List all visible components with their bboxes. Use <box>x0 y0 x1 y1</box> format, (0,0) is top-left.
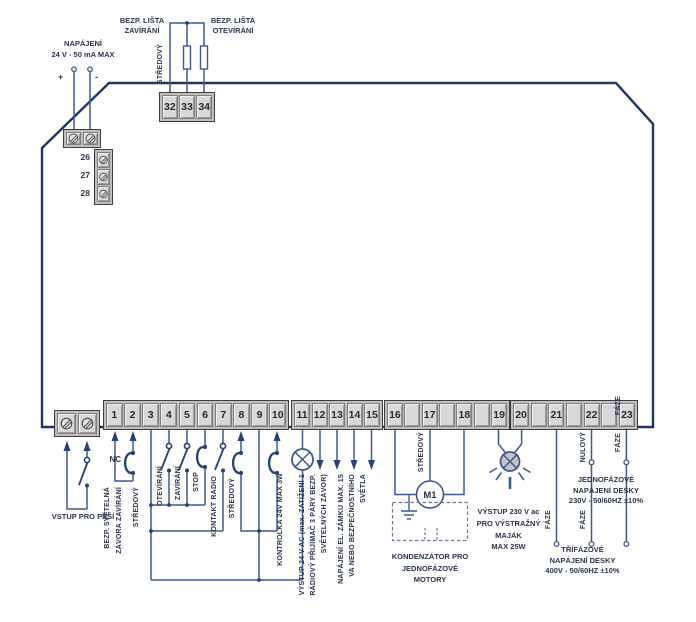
wiring-diagram: M1 <box>0 0 696 622</box>
label-line: MAJÁK <box>470 530 547 542</box>
common-t8-label: STŘEDOVÝ <box>229 478 236 518</box>
t8-nc-contact <box>233 451 243 475</box>
terminal-5: 5 <box>179 403 196 427</box>
label-line: MOTORY <box>384 574 476 586</box>
indicator-lamp-icon <box>292 449 313 470</box>
screw-icon <box>84 132 97 145</box>
screw-terminal-ped-2 <box>78 413 97 434</box>
terminal-20: 20 <box>513 403 529 427</box>
safety-edge-open-label: BEZP. LIŠTA OTEVÍRÁNÍ <box>202 16 264 35</box>
lock-supply-label-3: SVĚTLA <box>360 474 367 503</box>
terminal-12: 12 <box>312 403 328 427</box>
screw-terminal-minus <box>83 132 98 145</box>
pedestrian-loop <box>67 449 87 509</box>
common-top-label: STŘEDOVÝ <box>157 44 164 84</box>
terminal-9: 9 <box>251 403 268 427</box>
terminal-15: 15 <box>364 403 380 427</box>
three-phase-label: TŘÍFÁZOVÉ NAPÁJENÍ DESKY 400V - 50/60HZ … <box>534 545 631 577</box>
neutral-22-point <box>589 460 594 465</box>
ground-icon <box>401 495 417 520</box>
terminal-34: 34 <box>196 95 212 119</box>
terminal-17: 17 <box>422 403 438 427</box>
screw-icon <box>80 416 95 431</box>
label-line: BEZP. LIŠTA <box>202 16 264 26</box>
motor-icon: M1 <box>417 481 444 508</box>
pedestrian-switch <box>79 457 90 487</box>
indicator-label: KONTROLKA 24V MAX 3W <box>277 473 284 566</box>
lock-supply-label-2: VA NEBO BEZPEČNOSTNÍHO <box>349 474 356 577</box>
label-line: JEDNOFÁZOVÉ <box>384 563 476 575</box>
stop-label: STOP <box>193 472 200 492</box>
label-line: TŘÍFÁZOVÉ <box>534 545 631 556</box>
terminal-6: 6 <box>197 403 214 427</box>
terminal-3: 3 <box>142 403 159 427</box>
terminal-number-26: 26 <box>76 152 90 162</box>
label-line: 400V - 50/60HZ ±10% <box>534 566 631 577</box>
label-line: BEZP. LIŠTA <box>111 16 173 26</box>
terminal-strip-1-10: 1 2 3 4 5 6 7 8 9 10 <box>103 400 289 430</box>
wires-group <box>67 23 626 580</box>
label-line: PRO VÝSTRAŽNÝ <box>470 518 547 530</box>
resistor-open-edge <box>201 46 208 69</box>
terminal-18: 18 <box>456 403 472 427</box>
nc-label: NC <box>103 455 121 465</box>
screw-terminal-ped-1 <box>57 413 76 434</box>
beacon-wires <box>499 430 522 454</box>
capacitor-label: KONDENZÁTOR PRO JEDNOFÁZOVÉ MOTORY <box>384 551 476 586</box>
output24-label-2: RÁDIOVÝ PŘIJÍMAČ 3 PÁRY BEZP. <box>310 474 317 596</box>
terminal-22: 22 <box>584 403 600 427</box>
safety-edge-close-label: BEZP. LIŠTA ZAVÍRÁNÍ <box>111 16 173 35</box>
resistor-close-edge <box>184 46 191 69</box>
lock-supply-label-1: NAPÁJENÍ EL. ZÁMKU MAX. 15 <box>338 474 345 584</box>
terminal-spacer <box>531 403 547 427</box>
minus-sign: - <box>95 72 98 82</box>
terminal-spacer <box>474 403 490 427</box>
side-screw-strip <box>94 149 113 205</box>
plus-sign: + <box>58 72 63 82</box>
phase-22-label: FÁZE <box>580 510 587 529</box>
safety-edge-strip: 32 33 34 <box>159 92 215 122</box>
photocell-label-1: BEZP. SVĚTELNÁ <box>104 487 111 549</box>
common-t2-label: STŘEDOVÝ <box>133 487 140 527</box>
label-line: NAPÁJENÍ DESKY <box>558 486 654 497</box>
board-outline <box>42 83 653 427</box>
phase-23-point <box>624 460 629 465</box>
screw-icon <box>59 416 74 431</box>
terminal-16: 16 <box>387 403 403 427</box>
terminal-33: 33 <box>179 95 195 119</box>
power-supply-title: NAPÁJENÍ <box>43 39 123 49</box>
label-line: NAPÁJENÍ DESKY <box>534 556 631 567</box>
motor-label: M1 <box>423 490 437 501</box>
beacon-lamp-icon <box>490 452 531 489</box>
terminal-14: 14 <box>347 403 363 427</box>
terminal-number-27: 27 <box>76 170 90 180</box>
neutral-22-label: NULOVÝ <box>580 432 587 462</box>
pedestrian-screw-block <box>54 410 100 437</box>
photocell-label-2: ZÁVORA ZAVÍRÁNÍ <box>116 487 123 554</box>
phase-23-label: FÁZE <box>615 433 622 452</box>
down-arrows <box>317 460 376 470</box>
nc-contacts <box>125 445 279 475</box>
screw-terminal-28 <box>97 186 110 202</box>
label-line: OTEVÍRÁNÍ <box>202 26 264 36</box>
resistors <box>184 46 208 69</box>
supply-plus-terminal <box>72 67 77 72</box>
terminal-11: 11 <box>294 403 310 427</box>
terminal-32: 32 <box>162 95 178 119</box>
terminal-spacer <box>439 403 455 427</box>
terminal-7: 7 <box>215 403 232 427</box>
supply-screw-block <box>63 129 101 148</box>
label-line: 230V - 50/60HZ ±10% <box>558 496 654 507</box>
photocell-nc-contact <box>125 451 135 475</box>
terminal-8: 8 <box>233 403 250 427</box>
radio-label: KONTAKT RADIO <box>211 476 218 537</box>
output24-label-3: SVĚTELNÝCH ZÁVOR) <box>321 474 328 553</box>
open-label: OTEVÍRÁNÍ <box>157 466 164 506</box>
label-line: JEDNOFÁZOVÉ <box>558 475 654 486</box>
label-line: ZAVÍRÁNÍ <box>111 26 173 36</box>
screw-icon <box>98 188 109 200</box>
screw-icon <box>67 132 80 145</box>
label-line: VÝSTUP 230 V ac <box>470 506 547 518</box>
single-phase-label: JEDNOFÁZOVÉ NAPÁJENÍ DESKY 230V - 50/60H… <box>558 475 654 507</box>
phase-21-label: FÁZE <box>545 510 552 529</box>
terminal-number-28: 28 <box>76 188 90 198</box>
radio-switch <box>215 443 226 472</box>
terminal-4: 4 <box>160 403 177 427</box>
screw-terminal-plus <box>66 132 81 145</box>
output-stubs <box>320 430 372 461</box>
screw-terminal-27 <box>97 169 110 185</box>
common-motor-label: STŘEDOVÝ <box>418 432 425 472</box>
common2-wires <box>241 430 277 580</box>
terminal-strip-16-19: 16 17 18 19 <box>384 400 510 430</box>
terminal-13: 13 <box>329 403 345 427</box>
terminal-10: 10 <box>269 403 286 427</box>
stop-nc-contact <box>197 445 207 469</box>
output24-label-1: VÝSTUP 24 V AC (max. ZATÍŽENÍ 1 <box>299 474 306 595</box>
power-supply-rating: 24 V - 50 mA MAX <box>33 50 133 60</box>
terminal-19: 19 <box>491 403 507 427</box>
terminal-strip-11-15: 11 12 13 14 15 <box>291 400 383 430</box>
phase-23-top-label: FÁZE <box>615 396 622 415</box>
terminal-21: 21 <box>548 403 564 427</box>
terminal-spacer <box>404 403 420 427</box>
supply-24v-wires <box>74 72 90 130</box>
terminal-spacer <box>566 403 582 427</box>
label-line: KONDENZÁTOR PRO <box>384 551 476 563</box>
terminal-2: 2 <box>124 403 141 427</box>
supply-minus-terminal <box>88 67 93 72</box>
terminal-1: 1 <box>106 403 123 427</box>
t10-nc-contact <box>269 451 279 475</box>
screw-icon <box>98 171 109 183</box>
screw-terminal-26 <box>97 152 110 168</box>
close-label: ZAVÍRÁNÍ <box>175 466 182 500</box>
screw-icon <box>98 154 109 166</box>
